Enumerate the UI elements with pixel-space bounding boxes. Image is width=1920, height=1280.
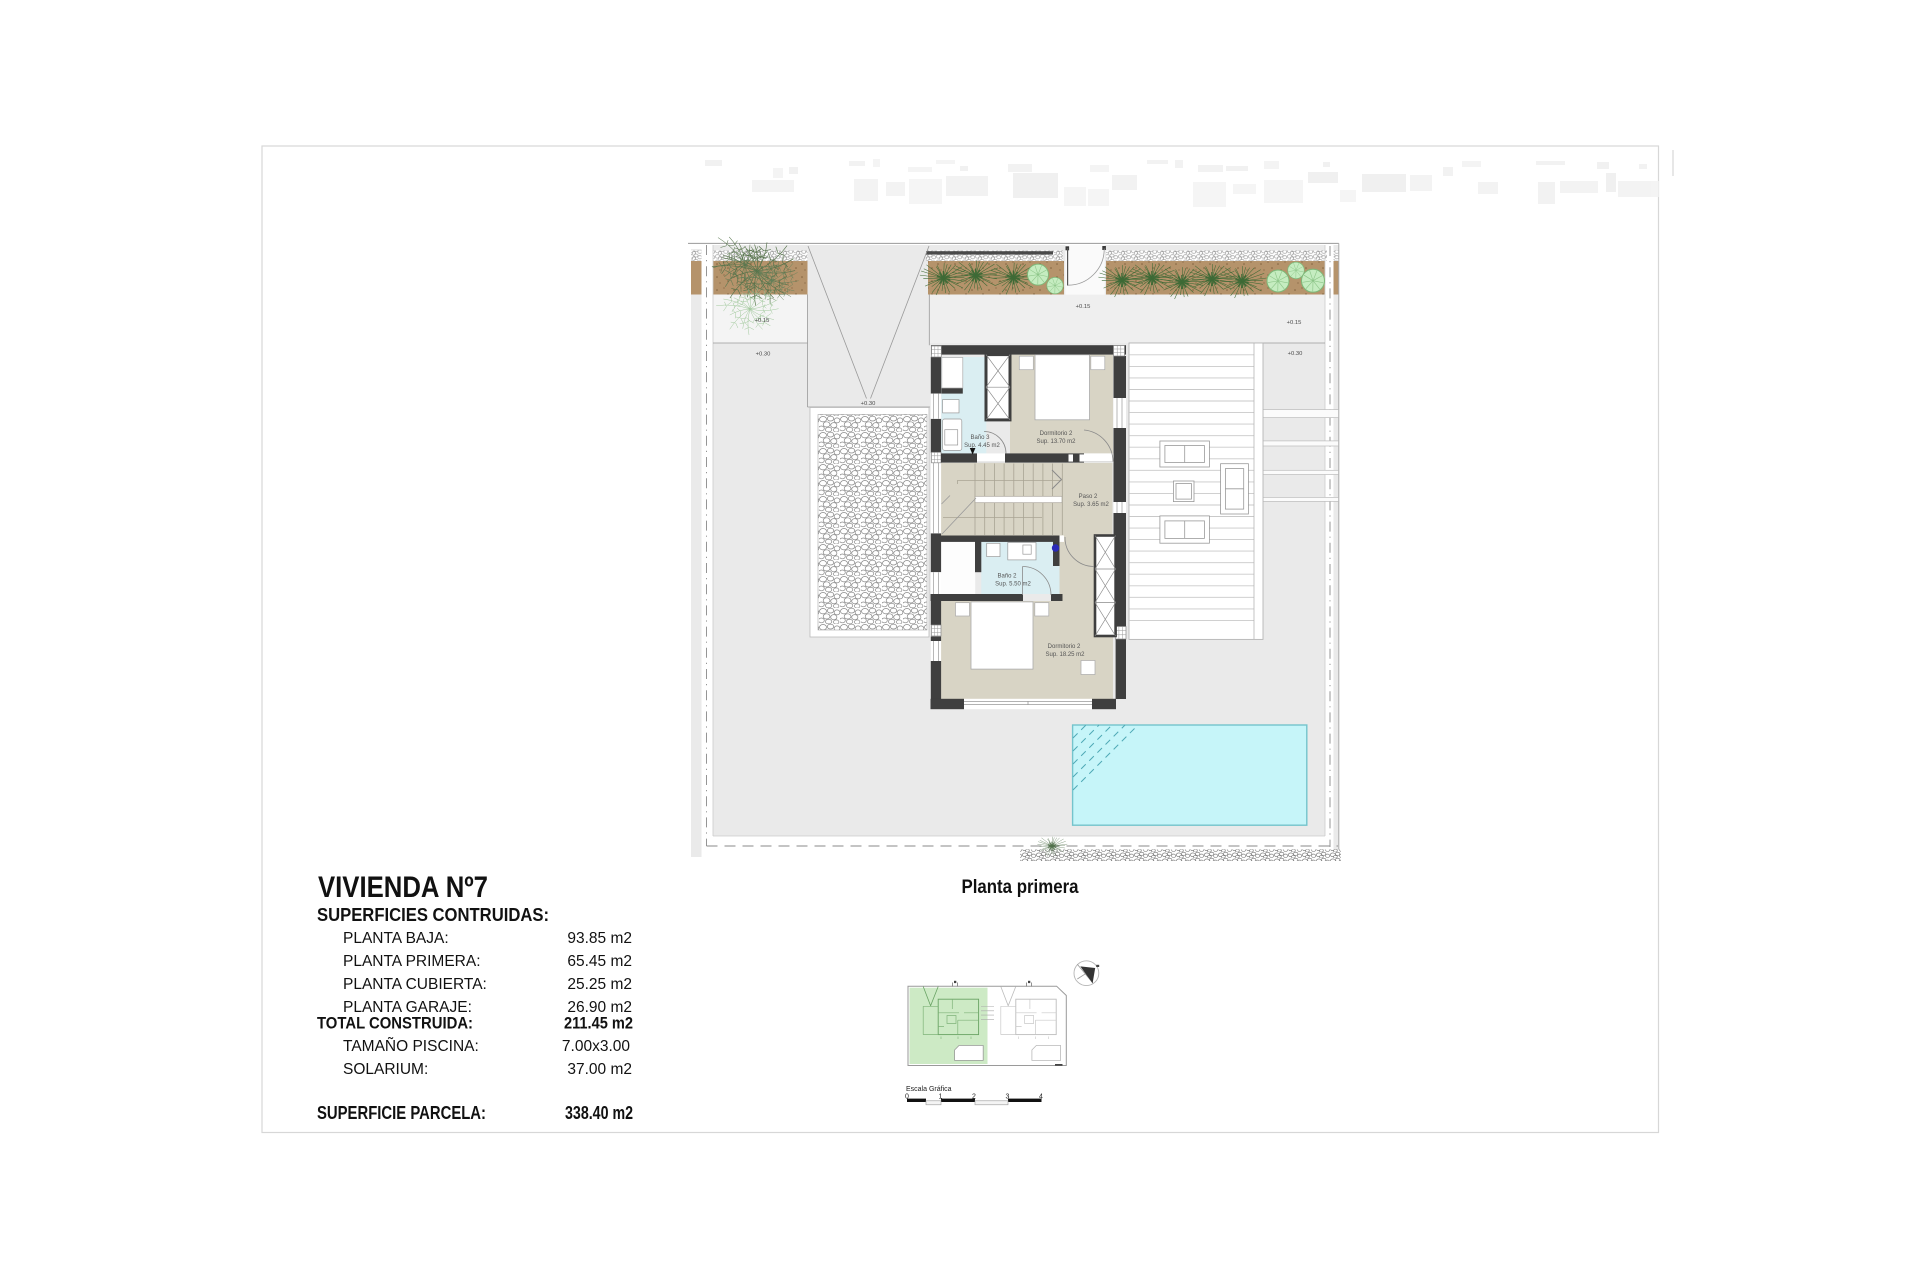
svg-text:Sup. 5.50 m2: Sup. 5.50 m2 bbox=[995, 582, 1031, 588]
svg-text:PLANTA CUBIERTA:: PLANTA CUBIERTA: bbox=[343, 976, 487, 993]
svg-text:Sup. 3.65 m2: Sup. 3.65 m2 bbox=[1073, 502, 1109, 508]
svg-text:PLANTA GARAJE:: PLANTA GARAJE: bbox=[343, 999, 472, 1016]
svg-text:TAMAÑO PISCINA:: TAMAÑO PISCINA: bbox=[343, 1038, 479, 1055]
svg-text:+0.15: +0.15 bbox=[1076, 304, 1091, 310]
svg-text:25.25 m2: 25.25 m2 bbox=[567, 976, 632, 993]
svg-text:+0.15: +0.15 bbox=[1287, 320, 1302, 326]
svg-text:338.40 m2: 338.40 m2 bbox=[565, 1102, 633, 1123]
svg-text:Baño 3: Baño 3 bbox=[970, 435, 990, 441]
svg-text:TOTAL CONSTRUIDA:: TOTAL CONSTRUIDA: bbox=[317, 1015, 473, 1033]
svg-text:PLANTA BAJA:: PLANTA BAJA: bbox=[343, 930, 449, 947]
svg-text:SUPERFICIE PARCELA:: SUPERFICIE PARCELA: bbox=[317, 1102, 486, 1123]
svg-text:26.90 m2: 26.90 m2 bbox=[567, 999, 632, 1016]
svg-text:+0.15: +0.15 bbox=[755, 318, 770, 324]
svg-text:Sup. 13.70 m2: Sup. 13.70 m2 bbox=[1036, 439, 1076, 445]
svg-text:+0.30: +0.30 bbox=[756, 352, 771, 358]
svg-text:Paso 2: Paso 2 bbox=[1079, 494, 1098, 500]
svg-text:Planta primera: Planta primera bbox=[962, 876, 1079, 898]
svg-text:VIVIENDA Nº7: VIVIENDA Nº7 bbox=[318, 871, 488, 904]
svg-text:PLANTA PRIMERA:: PLANTA PRIMERA: bbox=[343, 953, 481, 970]
svg-text:SOLARIUM:: SOLARIUM: bbox=[343, 1061, 428, 1078]
svg-text:+0.30: +0.30 bbox=[861, 401, 876, 407]
svg-text:SUPERFICIES CONTRUIDAS:: SUPERFICIES CONTRUIDAS: bbox=[317, 904, 549, 925]
svg-text:37.00 m2: 37.00 m2 bbox=[567, 1061, 632, 1078]
svg-text:Dormitorio 2: Dormitorio 2 bbox=[1048, 644, 1081, 650]
svg-text:Dormitorio 2: Dormitorio 2 bbox=[1040, 431, 1073, 437]
svg-text:+0.30: +0.30 bbox=[1288, 351, 1303, 357]
svg-text:Baño 2: Baño 2 bbox=[997, 574, 1017, 580]
svg-text:211.45 m2: 211.45 m2 bbox=[564, 1015, 633, 1033]
svg-text:93.85 m2: 93.85 m2 bbox=[567, 930, 632, 947]
svg-text:7.00x3.00: 7.00x3.00 bbox=[562, 1038, 630, 1055]
svg-text:65.45 m2: 65.45 m2 bbox=[567, 953, 632, 970]
svg-text:Sup. 4.45 m2: Sup. 4.45 m2 bbox=[964, 443, 1000, 449]
svg-text:Escala Gráfica: Escala Gráfica bbox=[906, 1086, 952, 1093]
svg-text:Sup. 18.25 m2: Sup. 18.25 m2 bbox=[1045, 652, 1085, 658]
